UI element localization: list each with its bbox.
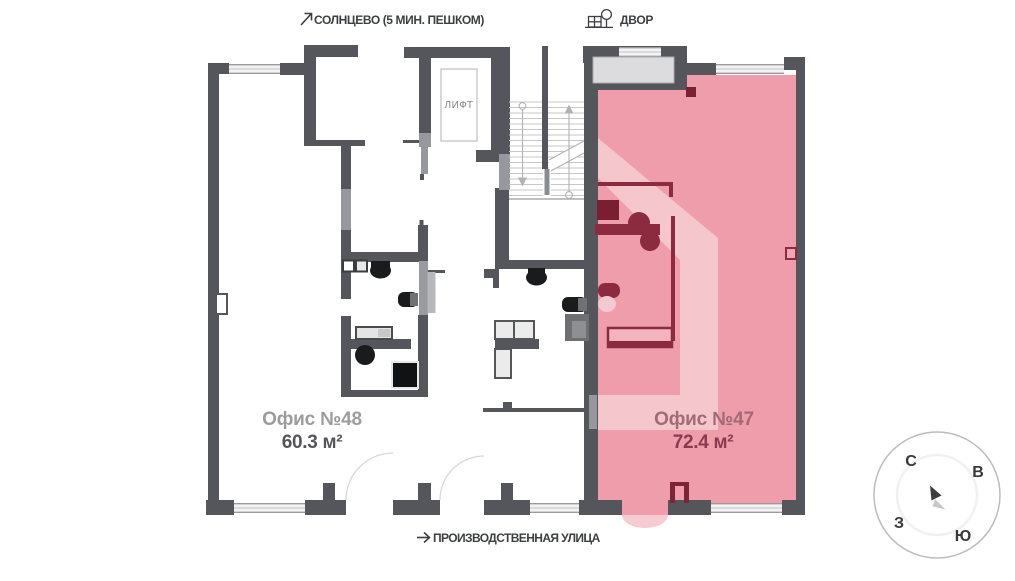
svg-text:ПРОИЗВОДСТВЕННАЯ УЛИЦА: ПРОИЗВОДСТВЕННАЯ УЛИЦА [433, 531, 601, 545]
svg-text:60.3 м²: 60.3 м² [282, 432, 343, 453]
svg-text:Ю: Ю [955, 528, 972, 545]
svg-text:ЛИФТ: ЛИФТ [445, 100, 474, 111]
svg-text:СОЛНЦЕВО (5 МИН. ПЕШКОМ): СОЛНЦЕВО (5 МИН. ПЕШКОМ) [314, 13, 484, 27]
svg-text:ДВОР: ДВОР [620, 13, 653, 27]
svg-text:В: В [972, 464, 984, 481]
svg-text:Офис №47: Офис №47 [654, 409, 754, 430]
svg-text:72.4 м²: 72.4 м² [673, 432, 734, 453]
svg-text:Офис №48: Офис №48 [262, 409, 362, 430]
svg-text:З: З [894, 515, 904, 532]
svg-text:С: С [905, 453, 917, 470]
